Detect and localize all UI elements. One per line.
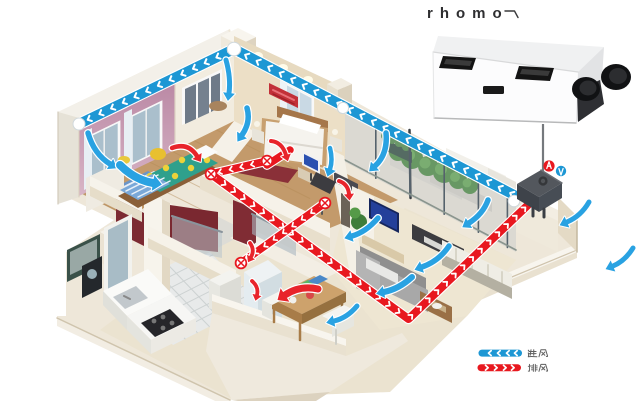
svg-text:rhomo: rhomo [427,5,509,22]
